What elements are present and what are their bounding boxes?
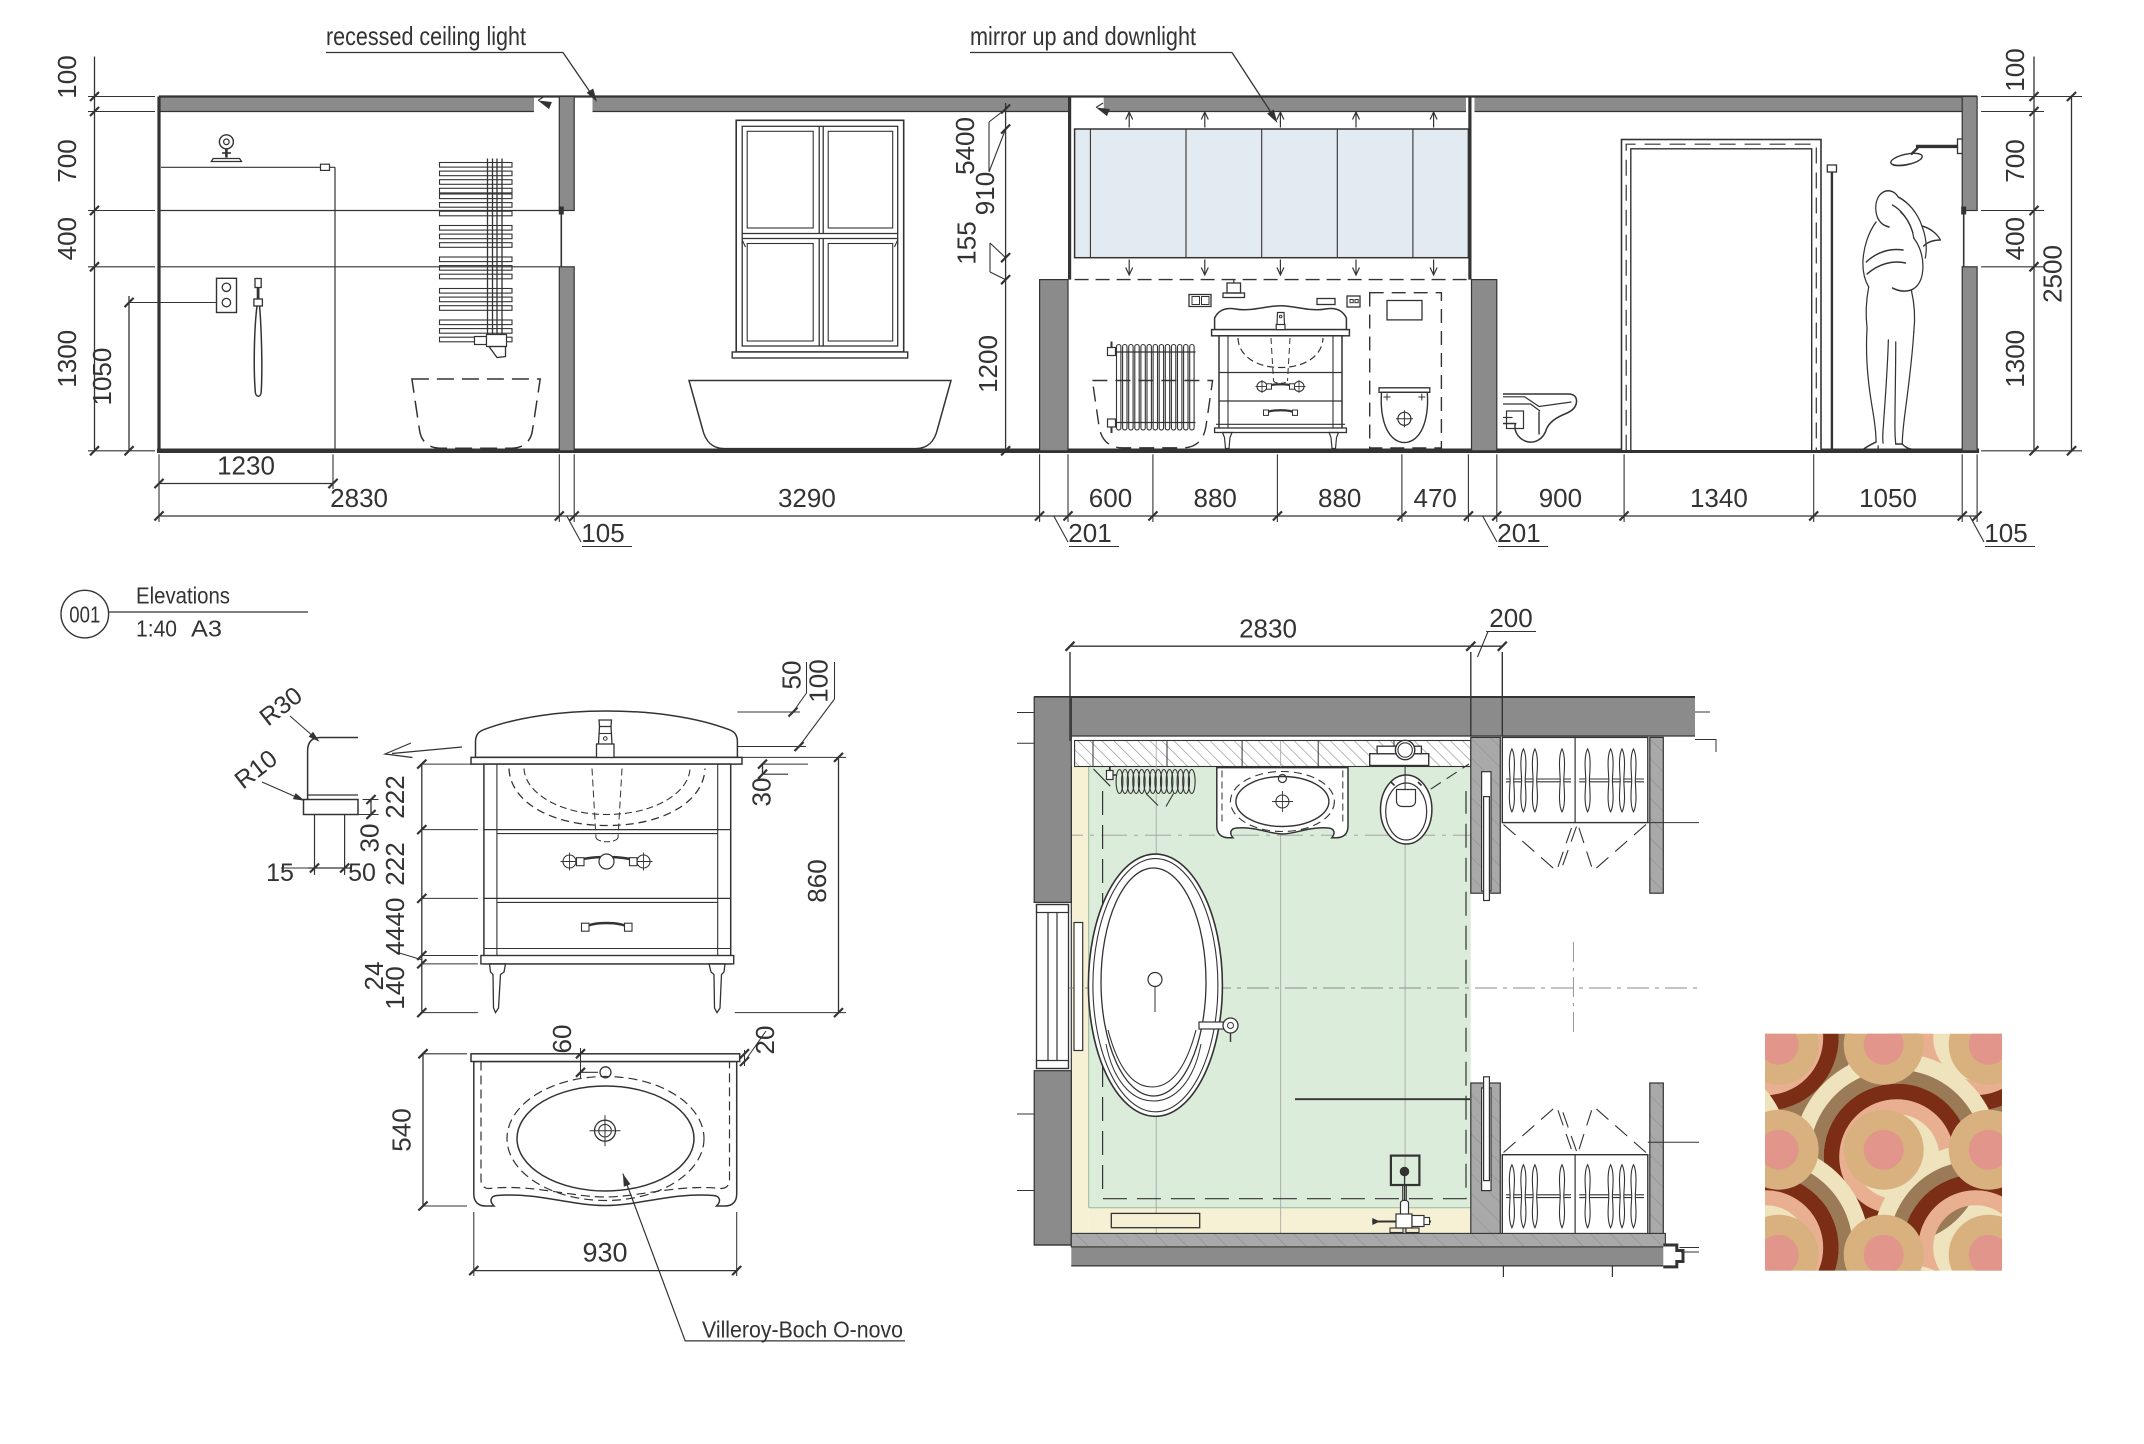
svg-text:540: 540	[387, 1108, 417, 1151]
svg-text:50: 50	[777, 661, 807, 690]
svg-text:100: 100	[2000, 48, 2030, 91]
svg-text:1200: 1200	[973, 335, 1003, 393]
svg-text:700: 700	[52, 139, 82, 182]
svg-text:5400: 5400	[950, 117, 980, 175]
svg-text:910: 910	[970, 172, 1000, 215]
svg-text:900: 900	[1539, 483, 1582, 513]
svg-text:15: 15	[266, 859, 294, 887]
svg-text:mirror up and downlight: mirror up and downlight	[970, 21, 1197, 51]
svg-text:1300: 1300	[52, 330, 82, 388]
svg-text:50: 50	[348, 859, 376, 887]
svg-text:470: 470	[1414, 483, 1457, 513]
svg-text:201: 201	[1068, 518, 1111, 548]
svg-text:2500: 2500	[2038, 245, 2068, 303]
svg-text:1050: 1050	[1859, 483, 1917, 513]
svg-text:A3: A3	[191, 616, 222, 642]
svg-text:880: 880	[1318, 483, 1361, 513]
svg-text:400: 400	[52, 217, 82, 260]
svg-text:Villeroy-Boch O-novo: Villeroy-Boch O-novo	[702, 1317, 903, 1343]
svg-text:4440: 4440	[380, 898, 410, 956]
svg-text:222: 222	[380, 775, 410, 818]
svg-text:100: 100	[52, 55, 82, 98]
svg-text:200: 200	[1489, 603, 1532, 633]
svg-text:1300: 1300	[2000, 330, 2030, 388]
svg-text:2830: 2830	[330, 483, 388, 513]
svg-text:1:40: 1:40	[136, 616, 177, 642]
svg-text:30: 30	[355, 824, 385, 853]
svg-text:700: 700	[2000, 139, 2030, 182]
svg-text:1050: 1050	[87, 348, 117, 406]
svg-text:Elevations: Elevations	[136, 583, 230, 609]
svg-text:2830: 2830	[1239, 614, 1297, 644]
svg-text:100: 100	[804, 659, 834, 702]
svg-text:1230: 1230	[217, 451, 275, 481]
svg-text:201: 201	[1497, 518, 1540, 548]
svg-text:222: 222	[380, 842, 410, 885]
svg-text:30: 30	[747, 778, 777, 807]
svg-text:600: 600	[1089, 483, 1132, 513]
svg-text:155: 155	[952, 221, 982, 264]
svg-text:105: 105	[581, 518, 624, 548]
svg-text:880: 880	[1194, 483, 1237, 513]
svg-text:20: 20	[750, 1026, 780, 1055]
svg-text:105: 105	[1984, 518, 2027, 548]
svg-text:1340: 1340	[1690, 483, 1748, 513]
svg-text:400: 400	[2000, 217, 2030, 260]
svg-text:930: 930	[582, 1238, 627, 1268]
svg-text:recessed ceiling light: recessed ceiling light	[326, 21, 527, 51]
svg-text:001: 001	[69, 602, 100, 628]
svg-text:3290: 3290	[778, 483, 836, 513]
svg-text:24: 24	[359, 962, 389, 991]
svg-text:60: 60	[547, 1025, 577, 1054]
svg-text:860: 860	[802, 859, 832, 902]
